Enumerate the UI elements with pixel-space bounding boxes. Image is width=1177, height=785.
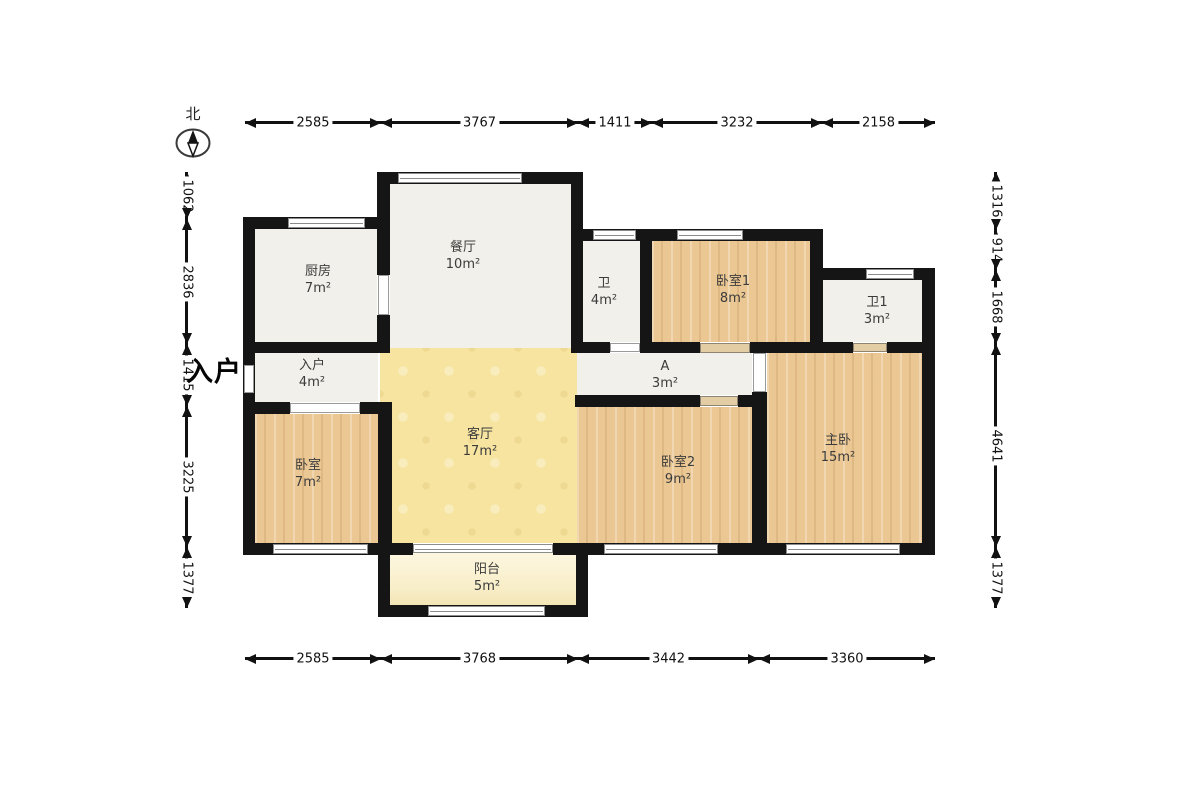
wall bbox=[640, 241, 652, 342]
room-name: 卧室 bbox=[295, 457, 321, 474]
wall bbox=[243, 402, 290, 414]
room-name: 卧室2 bbox=[661, 454, 695, 471]
floorplan-canvas: 北 入户 bbox=[0, 0, 1177, 785]
room-area: 5m² bbox=[474, 578, 500, 595]
dimension-left-1: 1062 bbox=[185, 172, 188, 219]
dimension-bottom-4: 3360 bbox=[759, 657, 935, 660]
wall bbox=[243, 342, 390, 353]
dimension-top-3: 1411 bbox=[578, 121, 652, 124]
room-area: 3m² bbox=[652, 375, 678, 392]
entrance-mark: 入户 bbox=[186, 358, 242, 388]
room-name: 餐厅 bbox=[446, 239, 480, 256]
wall bbox=[887, 342, 935, 353]
room-name: 阳台 bbox=[474, 561, 500, 578]
room-name: 卫1 bbox=[864, 294, 890, 311]
window bbox=[866, 269, 914, 279]
window bbox=[604, 544, 718, 554]
north-label: 北 bbox=[170, 106, 216, 122]
dimension-top-1: 2585 bbox=[245, 121, 381, 124]
window bbox=[288, 218, 365, 228]
room-name: 卫 bbox=[591, 275, 617, 292]
room-area: 4m² bbox=[591, 292, 617, 309]
dimension-bottom-2: 3768 bbox=[381, 657, 578, 660]
room-label-bedroom2: 卧室2 9m² bbox=[661, 454, 695, 488]
dimension-top-5: 2158 bbox=[822, 121, 935, 124]
room-name: A bbox=[652, 358, 678, 375]
window bbox=[786, 544, 900, 554]
door-opening bbox=[753, 353, 766, 392]
door-opening bbox=[378, 275, 389, 315]
room-label-dining: 餐厅 10m² bbox=[446, 239, 480, 273]
room-label-entry: 入户 4m² bbox=[299, 357, 325, 391]
room-label-balcony: 阳台 5m² bbox=[474, 561, 500, 595]
door-opening bbox=[610, 343, 640, 352]
room-area: 9m² bbox=[661, 471, 695, 488]
window bbox=[593, 230, 636, 240]
north-compass-icon bbox=[170, 123, 216, 163]
wall bbox=[377, 217, 390, 275]
balcony-slider-window bbox=[413, 544, 553, 553]
room-area: 3m² bbox=[864, 311, 890, 328]
room-area: 15m² bbox=[821, 449, 855, 466]
wall bbox=[575, 395, 700, 407]
room-area: 7m² bbox=[295, 474, 321, 491]
dimension-bottom-1: 2585 bbox=[245, 657, 381, 660]
room-area: 10m² bbox=[446, 256, 480, 273]
wall bbox=[750, 342, 853, 353]
wall bbox=[922, 268, 935, 555]
dimension-top-4: 3232 bbox=[652, 121, 822, 124]
room-label-bath1: 卫1 3m² bbox=[864, 294, 890, 328]
room-name: 入户 bbox=[299, 357, 325, 374]
room-area: 17m² bbox=[463, 443, 497, 460]
wall bbox=[378, 402, 392, 555]
room-area: 8m² bbox=[716, 290, 750, 307]
room-label-kitchen: 厨房 7m² bbox=[305, 263, 331, 297]
room-name: 卧室1 bbox=[716, 273, 750, 290]
entry-door-opening bbox=[244, 365, 254, 393]
wall bbox=[810, 229, 823, 353]
room-label-living: 客厅 17m² bbox=[463, 426, 497, 460]
dimension-left-5: 1377 bbox=[185, 547, 188, 608]
room-label-master: 主卧 15m² bbox=[821, 432, 855, 466]
room-label-hall-a: A 3m² bbox=[652, 358, 678, 392]
room-area: 7m² bbox=[305, 280, 331, 297]
window bbox=[677, 230, 743, 240]
dimension-right-4: 4641 bbox=[994, 344, 997, 547]
door-opening bbox=[700, 396, 738, 406]
door-opening bbox=[853, 343, 887, 352]
room-name: 厨房 bbox=[305, 263, 331, 280]
dimension-left-4: 3225 bbox=[185, 406, 188, 547]
dimension-right-2: 914 bbox=[994, 230, 997, 270]
wall bbox=[640, 342, 700, 353]
dimension-top-2: 3767 bbox=[381, 121, 578, 124]
wall bbox=[752, 392, 767, 543]
dimension-right-3: 1668 bbox=[994, 270, 997, 344]
room-label-bedroom1: 卧室1 8m² bbox=[716, 273, 750, 307]
dimension-left-2: 2836 bbox=[185, 219, 188, 344]
window bbox=[428, 606, 545, 616]
room-name: 主卧 bbox=[821, 432, 855, 449]
dimension-bottom-3: 3442 bbox=[578, 657, 759, 660]
wall bbox=[571, 172, 583, 353]
room-name: 客厅 bbox=[463, 426, 497, 443]
dimension-right-5: 1377 bbox=[994, 547, 997, 608]
room-dining bbox=[390, 184, 571, 348]
door-opening bbox=[700, 343, 750, 353]
room-area: 4m² bbox=[299, 374, 325, 391]
wall bbox=[571, 342, 610, 353]
room-label-bedroom-w: 卧室 7m² bbox=[295, 457, 321, 491]
window bbox=[398, 173, 522, 183]
dimension-right-1: 1316 bbox=[994, 172, 997, 230]
door-opening bbox=[290, 403, 360, 413]
window bbox=[273, 544, 368, 554]
room-label-bath: 卫 4m² bbox=[591, 275, 617, 309]
wall bbox=[377, 315, 390, 353]
compass: 北 bbox=[170, 106, 216, 167]
